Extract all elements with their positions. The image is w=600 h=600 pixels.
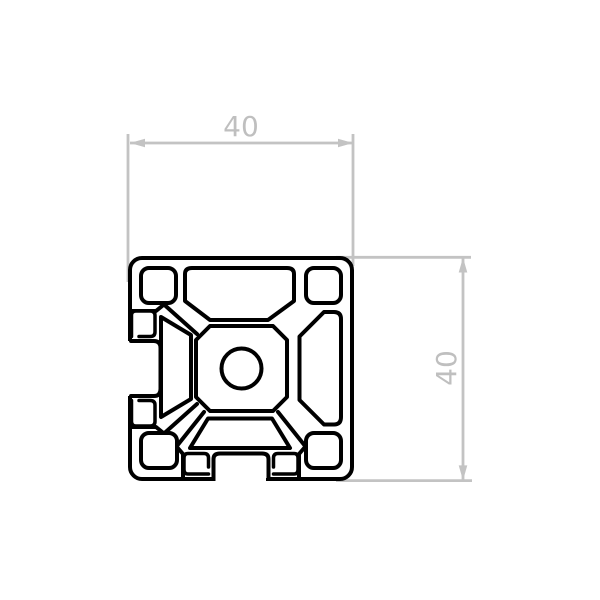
left-slot-channel (131, 341, 161, 396)
top-cavity (185, 268, 294, 320)
arrowhead-right-icon (338, 139, 353, 148)
left-inner-cavity (161, 317, 191, 417)
corner-cavity-bottom-left (141, 433, 177, 468)
right-cavity (300, 312, 342, 425)
arrowhead-top-icon (459, 258, 468, 273)
bottom-slot-channel (214, 454, 269, 479)
arrowhead-bottom-icon (459, 465, 468, 480)
bottom-slot-right-lip-hook (274, 454, 299, 475)
corner-cavity-top-right (306, 268, 341, 303)
left-slot-lower-lip-hook (132, 401, 156, 427)
bottom-slot-left-lip-hook (184, 454, 209, 475)
bottom-inner-cavity (190, 419, 290, 449)
arrowhead-left-icon (130, 139, 145, 148)
center-bore-hole (222, 349, 262, 389)
left-slot-upper-lip-hook (132, 311, 156, 337)
drawing-canvas: 40 40 (0, 0, 600, 600)
width-dimension-label: 40 (223, 110, 259, 143)
profile-cross-section (124, 258, 352, 484)
corner-cavity-top-left (141, 268, 176, 303)
height-dimension-label: 40 (430, 350, 463, 386)
corner-cavity-bottom-right (306, 433, 341, 468)
technical-drawing: 40 40 (0, 0, 600, 600)
